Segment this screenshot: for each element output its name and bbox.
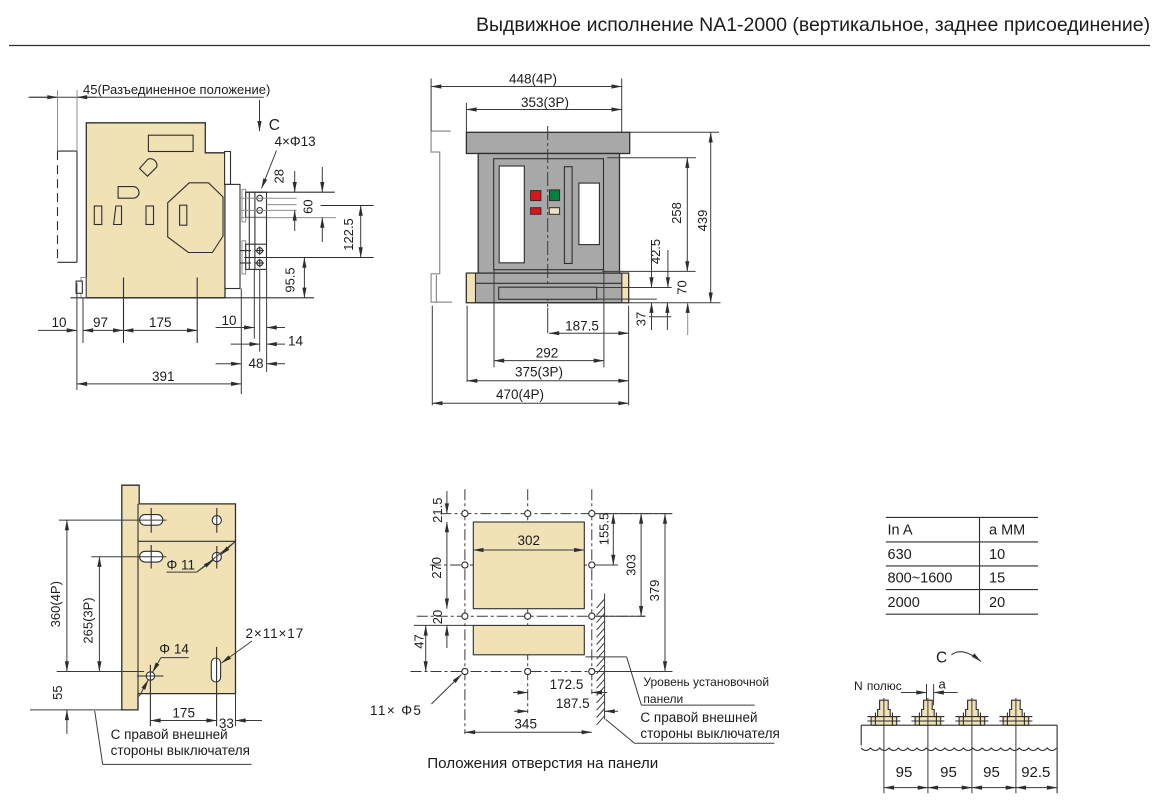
svg-text:Φ 14: Φ 14 bbox=[159, 642, 189, 657]
svg-text:175: 175 bbox=[172, 706, 195, 721]
svg-text:391: 391 bbox=[152, 369, 175, 384]
svg-text:C: C bbox=[936, 650, 947, 667]
svg-text:Положения отверстия на панели: Положения отверстия на панели bbox=[427, 755, 658, 772]
svg-text:14: 14 bbox=[288, 334, 304, 349]
svg-text:302: 302 bbox=[518, 533, 541, 548]
svg-text:70: 70 bbox=[675, 280, 690, 294]
svg-text:439: 439 bbox=[695, 210, 710, 232]
svg-text:Φ 11: Φ 11 bbox=[167, 558, 196, 573]
svg-text:95: 95 bbox=[896, 764, 913, 781]
svg-text:15: 15 bbox=[989, 571, 1005, 587]
svg-text:2000: 2000 bbox=[888, 595, 920, 611]
svg-text:187.5: 187.5 bbox=[565, 319, 599, 334]
svg-text:48: 48 bbox=[249, 356, 264, 371]
svg-text:Уровень установочной: Уровень установочной bbox=[643, 675, 769, 689]
svg-text:630: 630 bbox=[888, 547, 912, 563]
svg-text:Выдвижное исполнение NA1-2000: Выдвижное исполнение NA1-2000 (вертикаль… bbox=[476, 14, 1150, 36]
svg-text:375(3P): 375(3P) bbox=[515, 365, 563, 380]
svg-text:258: 258 bbox=[669, 202, 684, 224]
svg-text:стороны выключателя: стороны выключателя bbox=[640, 726, 779, 741]
svg-text:47: 47 bbox=[412, 634, 427, 648]
svg-text:4×Φ13: 4×Φ13 bbox=[275, 134, 316, 149]
svg-text:345: 345 bbox=[514, 717, 537, 732]
svg-text:55: 55 bbox=[50, 685, 65, 699]
svg-text:172.5: 172.5 bbox=[550, 677, 584, 692]
svg-text:a MM: a MM bbox=[989, 523, 1025, 539]
svg-text:122.5: 122.5 bbox=[341, 218, 356, 251]
svg-text:10: 10 bbox=[52, 315, 67, 330]
svg-text:21.5: 21.5 bbox=[430, 498, 445, 523]
svg-text:448(4P): 448(4P) bbox=[509, 72, 557, 87]
svg-text:панели: панели bbox=[643, 692, 683, 706]
svg-text:360(4P): 360(4P) bbox=[48, 581, 63, 627]
svg-text:N: N bbox=[854, 679, 863, 693]
svg-text:265(3P): 265(3P) bbox=[81, 597, 96, 643]
svg-text:97: 97 bbox=[93, 315, 108, 330]
svg-text:95.5: 95.5 bbox=[283, 267, 298, 292]
svg-text:11× Φ5: 11× Φ5 bbox=[370, 703, 422, 718]
svg-text:С правой внешней: С правой внешней bbox=[640, 710, 757, 725]
svg-text:2×11×17: 2×11×17 bbox=[246, 626, 305, 641]
svg-text:45(Разъединенное положение): 45(Разъединенное положение) bbox=[83, 82, 270, 97]
svg-text:a: a bbox=[939, 677, 947, 692]
svg-text:175: 175 bbox=[149, 315, 172, 330]
svg-text:292: 292 bbox=[536, 346, 559, 361]
svg-text:стороны выключателя: стороны выключателя bbox=[111, 743, 250, 758]
svg-text:303: 303 bbox=[623, 554, 638, 576]
svg-text:С правой внешней: С правой внешней bbox=[111, 727, 228, 742]
svg-text:270: 270 bbox=[429, 557, 444, 579]
svg-text:20: 20 bbox=[430, 610, 445, 624]
svg-text:C: C bbox=[269, 117, 280, 134]
svg-text:28: 28 bbox=[271, 169, 286, 183]
svg-text:10: 10 bbox=[989, 547, 1005, 563]
svg-text:95: 95 bbox=[983, 764, 1000, 781]
svg-text:In A: In A bbox=[888, 523, 913, 539]
svg-text:10: 10 bbox=[222, 313, 237, 328]
svg-text:800~1600: 800~1600 bbox=[888, 571, 953, 587]
svg-text:92.5: 92.5 bbox=[1021, 764, 1050, 781]
svg-text:37: 37 bbox=[634, 312, 649, 326]
svg-text:42.5: 42.5 bbox=[648, 239, 663, 264]
svg-text:20: 20 bbox=[989, 595, 1005, 611]
svg-text:353(3P): 353(3P) bbox=[521, 95, 569, 110]
svg-text:470(4P): 470(4P) bbox=[496, 387, 544, 402]
svg-text:60: 60 bbox=[301, 199, 316, 213]
svg-text:95: 95 bbox=[940, 764, 957, 781]
svg-text:155.5: 155.5 bbox=[597, 513, 612, 546]
svg-text:полюс: полюс bbox=[867, 679, 902, 693]
svg-text:187.5: 187.5 bbox=[556, 696, 590, 711]
svg-text:379: 379 bbox=[647, 580, 662, 602]
